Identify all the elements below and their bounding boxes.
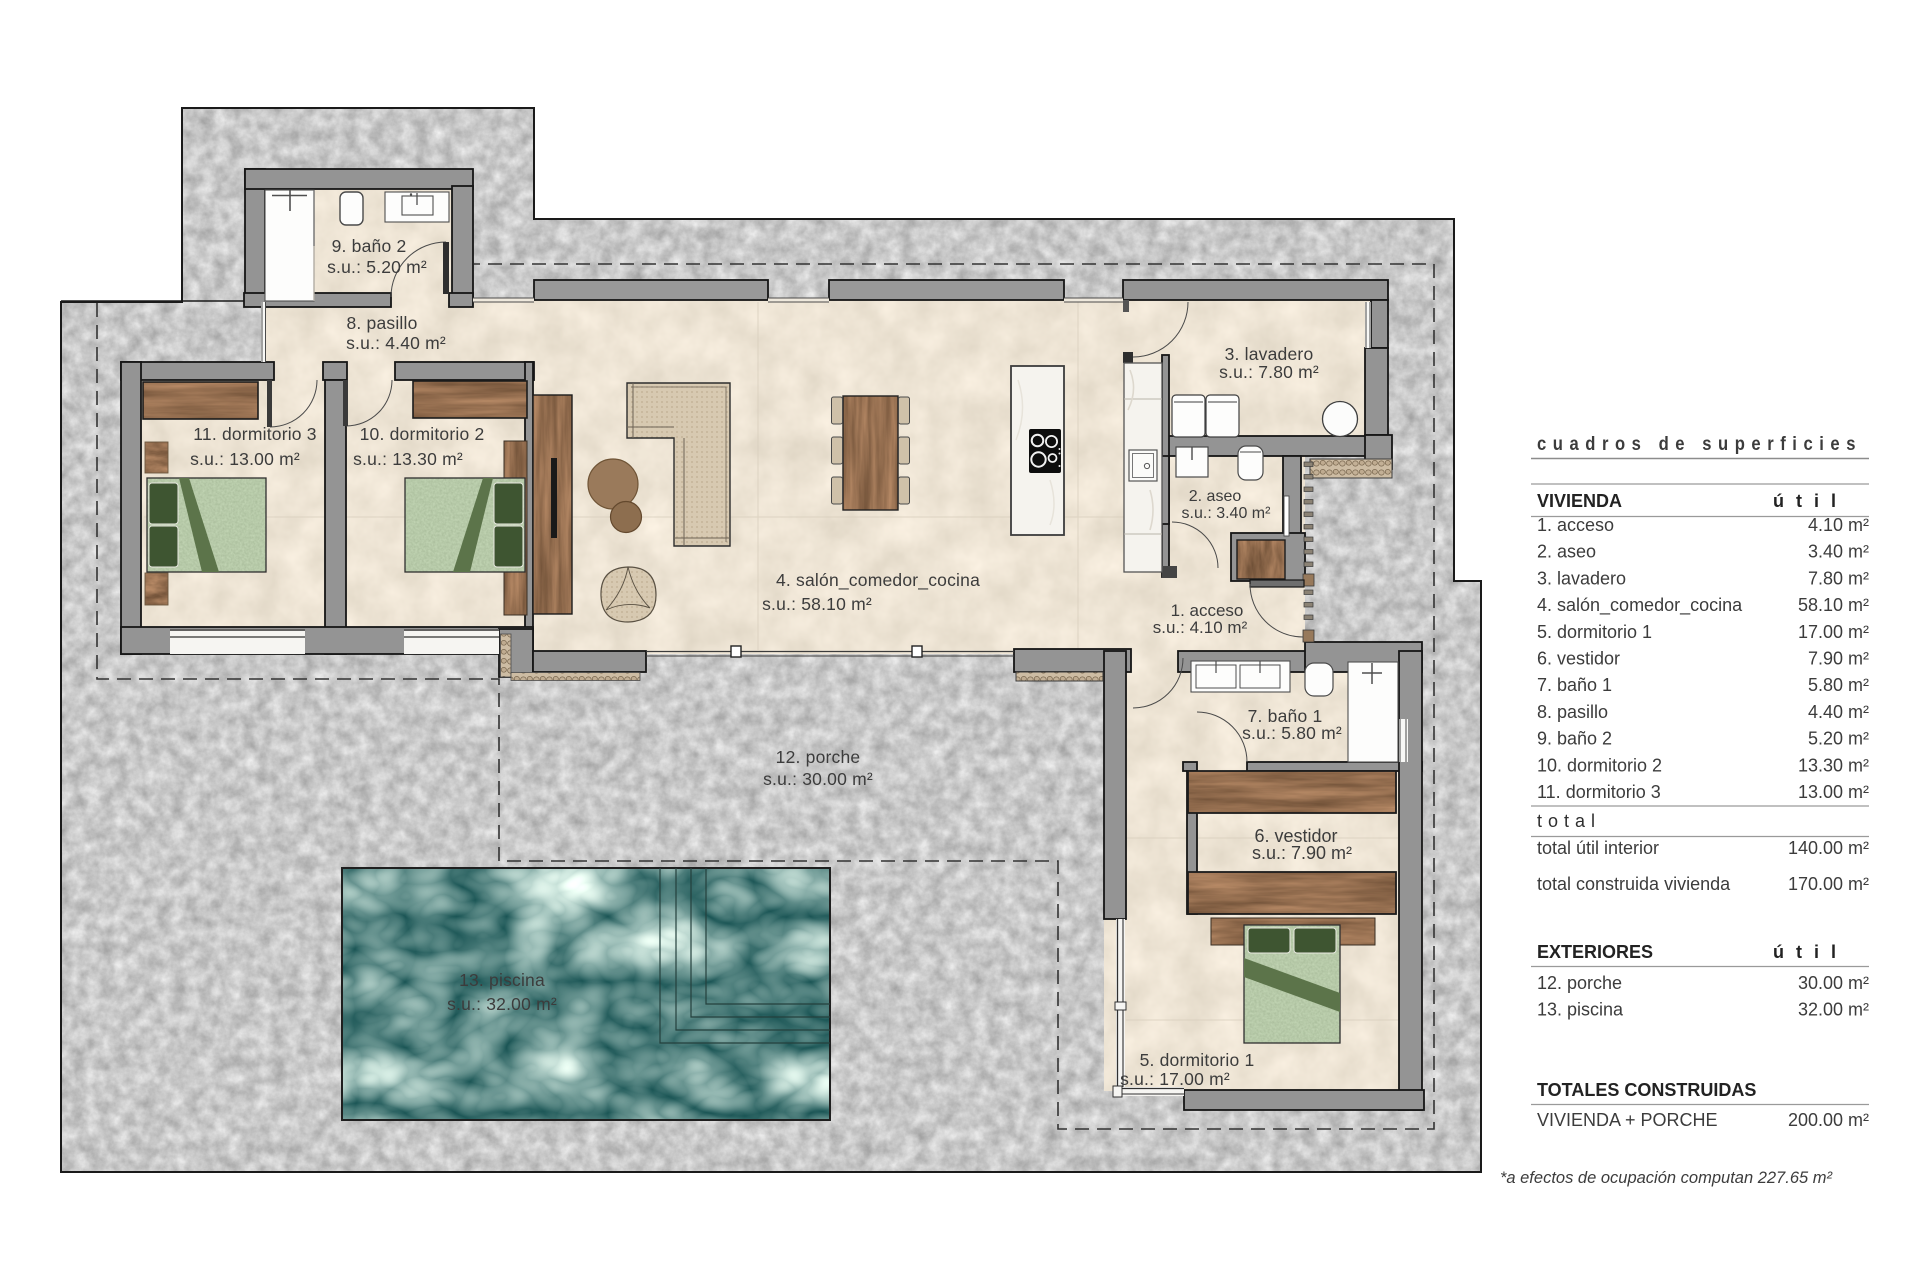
svg-text:9. baño 2: 9. baño 2 [332, 236, 407, 256]
svg-text:3.40 m²: 3.40 m² [1808, 542, 1869, 562]
svg-text:30.00 m²: 30.00 m² [1798, 973, 1869, 993]
svg-text:58.10 m²: 58.10 m² [1798, 595, 1869, 615]
svg-text:EXTERIORES: EXTERIORES [1537, 942, 1653, 962]
svg-text:VIVIENDA + PORCHE: VIVIENDA + PORCHE [1537, 1110, 1718, 1130]
svg-text:32.00 m²: 32.00 m² [1798, 1000, 1869, 1020]
svg-text:s.u.: 13.30 m²: s.u.: 13.30 m² [353, 449, 463, 469]
svg-text:7. baño 1: 7. baño 1 [1537, 675, 1612, 695]
svg-text:5. dormitorio 1: 5. dormitorio 1 [1140, 1050, 1255, 1070]
svg-text:2. aseo: 2. aseo [1189, 488, 1242, 505]
svg-text:11. dormitorio 3: 11. dormitorio 3 [1537, 782, 1661, 802]
svg-text:140.00 m²: 140.00 m² [1788, 838, 1869, 858]
svg-text:VIVIENDA: VIVIENDA [1537, 491, 1622, 511]
svg-text:*a efectos de ocupación comput: *a efectos de ocupación computan 227.65 … [1500, 1169, 1833, 1187]
svg-text:3. lavadero: 3. lavadero [1225, 344, 1314, 364]
svg-text:6. vestidor: 6. vestidor [1537, 649, 1620, 669]
svg-text:4.40 m²: 4.40 m² [1808, 702, 1869, 722]
svg-text:s.u.: 5.20 m²: s.u.: 5.20 m² [327, 257, 427, 277]
svg-text:13. piscina: 13. piscina [459, 970, 545, 990]
svg-text:total útil interior: total útil interior [1537, 838, 1659, 858]
svg-text:s.u.: 13.00 m²: s.u.: 13.00 m² [190, 449, 300, 469]
svg-text:total construida vivienda: total construida vivienda [1537, 874, 1731, 894]
svg-text:7.80 m²: 7.80 m² [1808, 568, 1869, 588]
svg-text:s.u.: 4.40 m²: s.u.: 4.40 m² [346, 333, 446, 353]
svg-text:4. salón_comedor_cocina: 4. salón_comedor_cocina [776, 570, 980, 591]
svg-text:s.u.: 4.10 m²: s.u.: 4.10 m² [1153, 618, 1248, 637]
svg-text:10. dormitorio 2: 10. dormitorio 2 [360, 424, 485, 444]
svg-text:cuadros de superficies: cuadros de superficies [1537, 434, 1862, 455]
svg-text:5. dormitorio 1: 5. dormitorio 1 [1537, 622, 1652, 642]
svg-text:s.u.: 5.80 m²: s.u.: 5.80 m² [1242, 723, 1342, 743]
svg-text:4. salón_comedor_cocina: 4. salón_comedor_cocina [1537, 595, 1743, 616]
svg-text:total: total [1537, 811, 1601, 831]
svg-text:200.00 m²: 200.00 m² [1788, 1110, 1869, 1130]
svg-text:5.20 m²: 5.20 m² [1808, 729, 1869, 749]
svg-text:8. pasillo: 8. pasillo [1537, 702, 1608, 722]
svg-text:12. porche: 12. porche [776, 747, 861, 767]
svg-text:s.u.: 32.00 m²: s.u.: 32.00 m² [447, 994, 557, 1014]
svg-text:12. porche: 12. porche [1537, 973, 1622, 993]
svg-text:2. aseo: 2. aseo [1537, 542, 1596, 562]
svg-text:170.00 m²: 170.00 m² [1788, 874, 1869, 894]
svg-text:s.u.: 7.80 m²: s.u.: 7.80 m² [1219, 362, 1319, 382]
svg-text:4.10 m²: 4.10 m² [1808, 515, 1869, 535]
svg-text:11. dormitorio 3: 11. dormitorio 3 [193, 424, 317, 444]
svg-text:s.u.: 30.00 m²: s.u.: 30.00 m² [763, 769, 873, 789]
svg-text:TOTALES CONSTRUIDAS: TOTALES CONSTRUIDAS [1537, 1080, 1756, 1100]
svg-text:7.90 m²: 7.90 m² [1808, 649, 1869, 669]
svg-text:13. piscina: 13. piscina [1537, 1000, 1624, 1020]
svg-text:10. dormitorio 2: 10. dormitorio 2 [1537, 755, 1662, 775]
svg-text:3. lavadero: 3. lavadero [1537, 568, 1626, 588]
svg-text:13.00 m²: 13.00 m² [1798, 782, 1869, 802]
svg-text:8. pasillo: 8. pasillo [346, 313, 417, 333]
svg-text:s.u.: 58.10 m²: s.u.: 58.10 m² [762, 594, 872, 614]
svg-text:9. baño 2: 9. baño 2 [1537, 729, 1612, 749]
svg-text:útil: útil [1773, 942, 1848, 962]
svg-text:1. acceso: 1. acceso [1537, 515, 1614, 535]
svg-text:s.u.: 3.40 m²: s.u.: 3.40 m² [1182, 505, 1272, 522]
svg-text:s.u.: 17.00 m²: s.u.: 17.00 m² [1120, 1069, 1230, 1089]
svg-text:s.u.: 7.90 m²: s.u.: 7.90 m² [1252, 843, 1352, 863]
svg-text:5.80 m²: 5.80 m² [1808, 675, 1869, 695]
svg-text:útil: útil [1773, 491, 1848, 511]
svg-text:17.00 m²: 17.00 m² [1798, 622, 1869, 642]
svg-text:13.30 m²: 13.30 m² [1798, 755, 1869, 775]
